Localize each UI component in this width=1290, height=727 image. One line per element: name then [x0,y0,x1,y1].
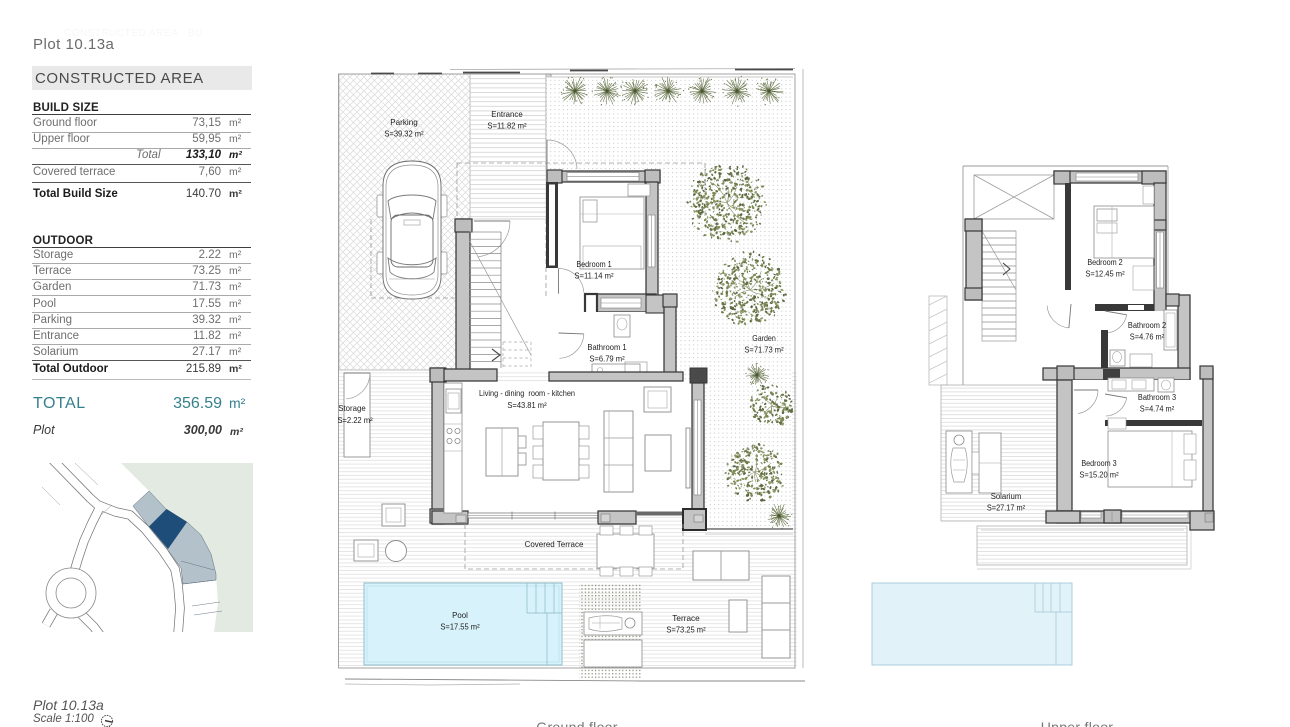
svg-text:Terrace: Terrace [672,614,700,623]
svg-text:S=6.79 m²: S=6.79 m² [589,355,625,364]
svg-text:Bathroom 1: Bathroom 1 [587,343,627,352]
svg-text:Solarium: Solarium [991,492,1022,501]
svg-text:S=39.32 m²: S=39.32 m² [384,130,423,139]
svg-text:S=15.20 m²: S=15.20 m² [1079,471,1118,480]
svg-text:Garden: Garden [752,334,776,343]
svg-text:Covered Terrace: Covered Terrace [525,540,584,549]
svg-text:Bathroom 3: Bathroom 3 [1138,393,1177,402]
svg-text:S=11.14 m²: S=11.14 m² [574,272,613,281]
svg-text:Parking: Parking [390,118,418,127]
svg-text:Pool: Pool [452,611,468,620]
svg-text:S=73.25 m²: S=73.25 m² [666,626,705,635]
svg-text:Entrance: Entrance [491,110,523,119]
svg-text:Bedroom 1: Bedroom 1 [576,260,612,269]
svg-text:Living - dining room - kitche: Living - dining room - kitchen [479,389,575,398]
svg-text:S=17.55 m²: S=17.55 m² [440,623,479,632]
svg-text:Bedroom 3: Bedroom 3 [1081,459,1117,468]
svg-text:Bedroom 2: Bedroom 2 [1087,258,1123,267]
svg-text:Bathroom 2: Bathroom 2 [1128,321,1167,330]
svg-text:S=2.22 m²: S=2.22 m² [337,416,373,425]
svg-text:Storage: Storage [338,404,366,413]
svg-text:S=4.76 m²: S=4.76 m² [1130,333,1165,342]
svg-text:S=43.81 m²: S=43.81 m² [507,401,546,410]
svg-text:S=12.45 m²: S=12.45 m² [1085,270,1124,279]
svg-text:S=71.73 m²: S=71.73 m² [744,346,783,355]
svg-text:S=4.74 m²: S=4.74 m² [1140,405,1175,414]
svg-text:S=27.17 m²: S=27.17 m² [987,504,1026,513]
svg-text:S=11.82 m²: S=11.82 m² [487,122,526,131]
